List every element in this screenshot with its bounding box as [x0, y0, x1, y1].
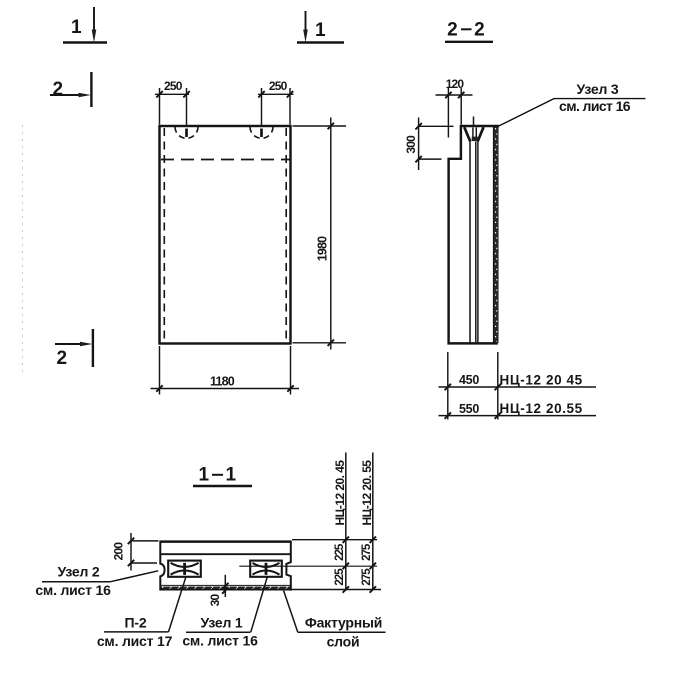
svg-text:275: 275 — [361, 568, 373, 586]
svg-text:225: 225 — [334, 568, 346, 586]
svg-text:слой: слой — [327, 634, 360, 650]
svg-text:Узел 2: Узел 2 — [58, 564, 100, 580]
svg-text:см. лист 16: см. лист 16 — [182, 633, 258, 649]
svg-text:см. лист 16: см. лист 16 — [35, 582, 111, 598]
svg-text:П-2: П-2 — [125, 615, 147, 631]
svg-text:2: 2 — [474, 20, 485, 41]
svg-text:1: 1 — [71, 17, 82, 38]
svg-text:1: 1 — [315, 20, 326, 41]
svg-text:200: 200 — [112, 542, 126, 561]
svg-text:НЦ-12 20 45: НЦ-12 20 45 — [500, 373, 583, 388]
svg-text:Узел 1: Узел 1 — [201, 615, 243, 631]
svg-text:225: 225 — [334, 543, 346, 561]
svg-text:2: 2 — [447, 20, 458, 41]
svg-text:275: 275 — [361, 543, 373, 561]
svg-text:30: 30 — [208, 594, 222, 607]
svg-text:НЦ-12 20. 45: НЦ-12 20. 45 — [333, 460, 347, 526]
svg-text:НЦ-12 20. 55: НЦ-12 20. 55 — [360, 460, 374, 526]
svg-text:2: 2 — [56, 348, 67, 369]
svg-text:2: 2 — [52, 79, 63, 100]
svg-text:Фактурный: Фактурный — [305, 615, 382, 631]
svg-text:см. лист 16: см. лист 16 — [559, 98, 631, 114]
svg-text:1: 1 — [225, 465, 236, 486]
svg-text:см. лист 17: см. лист 17 — [97, 633, 173, 649]
svg-text:Узел 3: Узел 3 — [577, 81, 619, 97]
svg-text:300: 300 — [404, 135, 418, 154]
svg-text:1980: 1980 — [316, 236, 330, 261]
svg-text:250: 250 — [269, 79, 288, 93]
svg-text:250: 250 — [164, 79, 183, 93]
svg-text:1: 1 — [198, 465, 209, 486]
svg-text:450: 450 — [459, 373, 479, 387]
svg-text:550: 550 — [459, 402, 479, 416]
svg-text:1180: 1180 — [210, 375, 235, 389]
svg-text:НЦ-12 20.55: НЦ-12 20.55 — [500, 401, 583, 416]
svg-text:120: 120 — [446, 77, 465, 91]
